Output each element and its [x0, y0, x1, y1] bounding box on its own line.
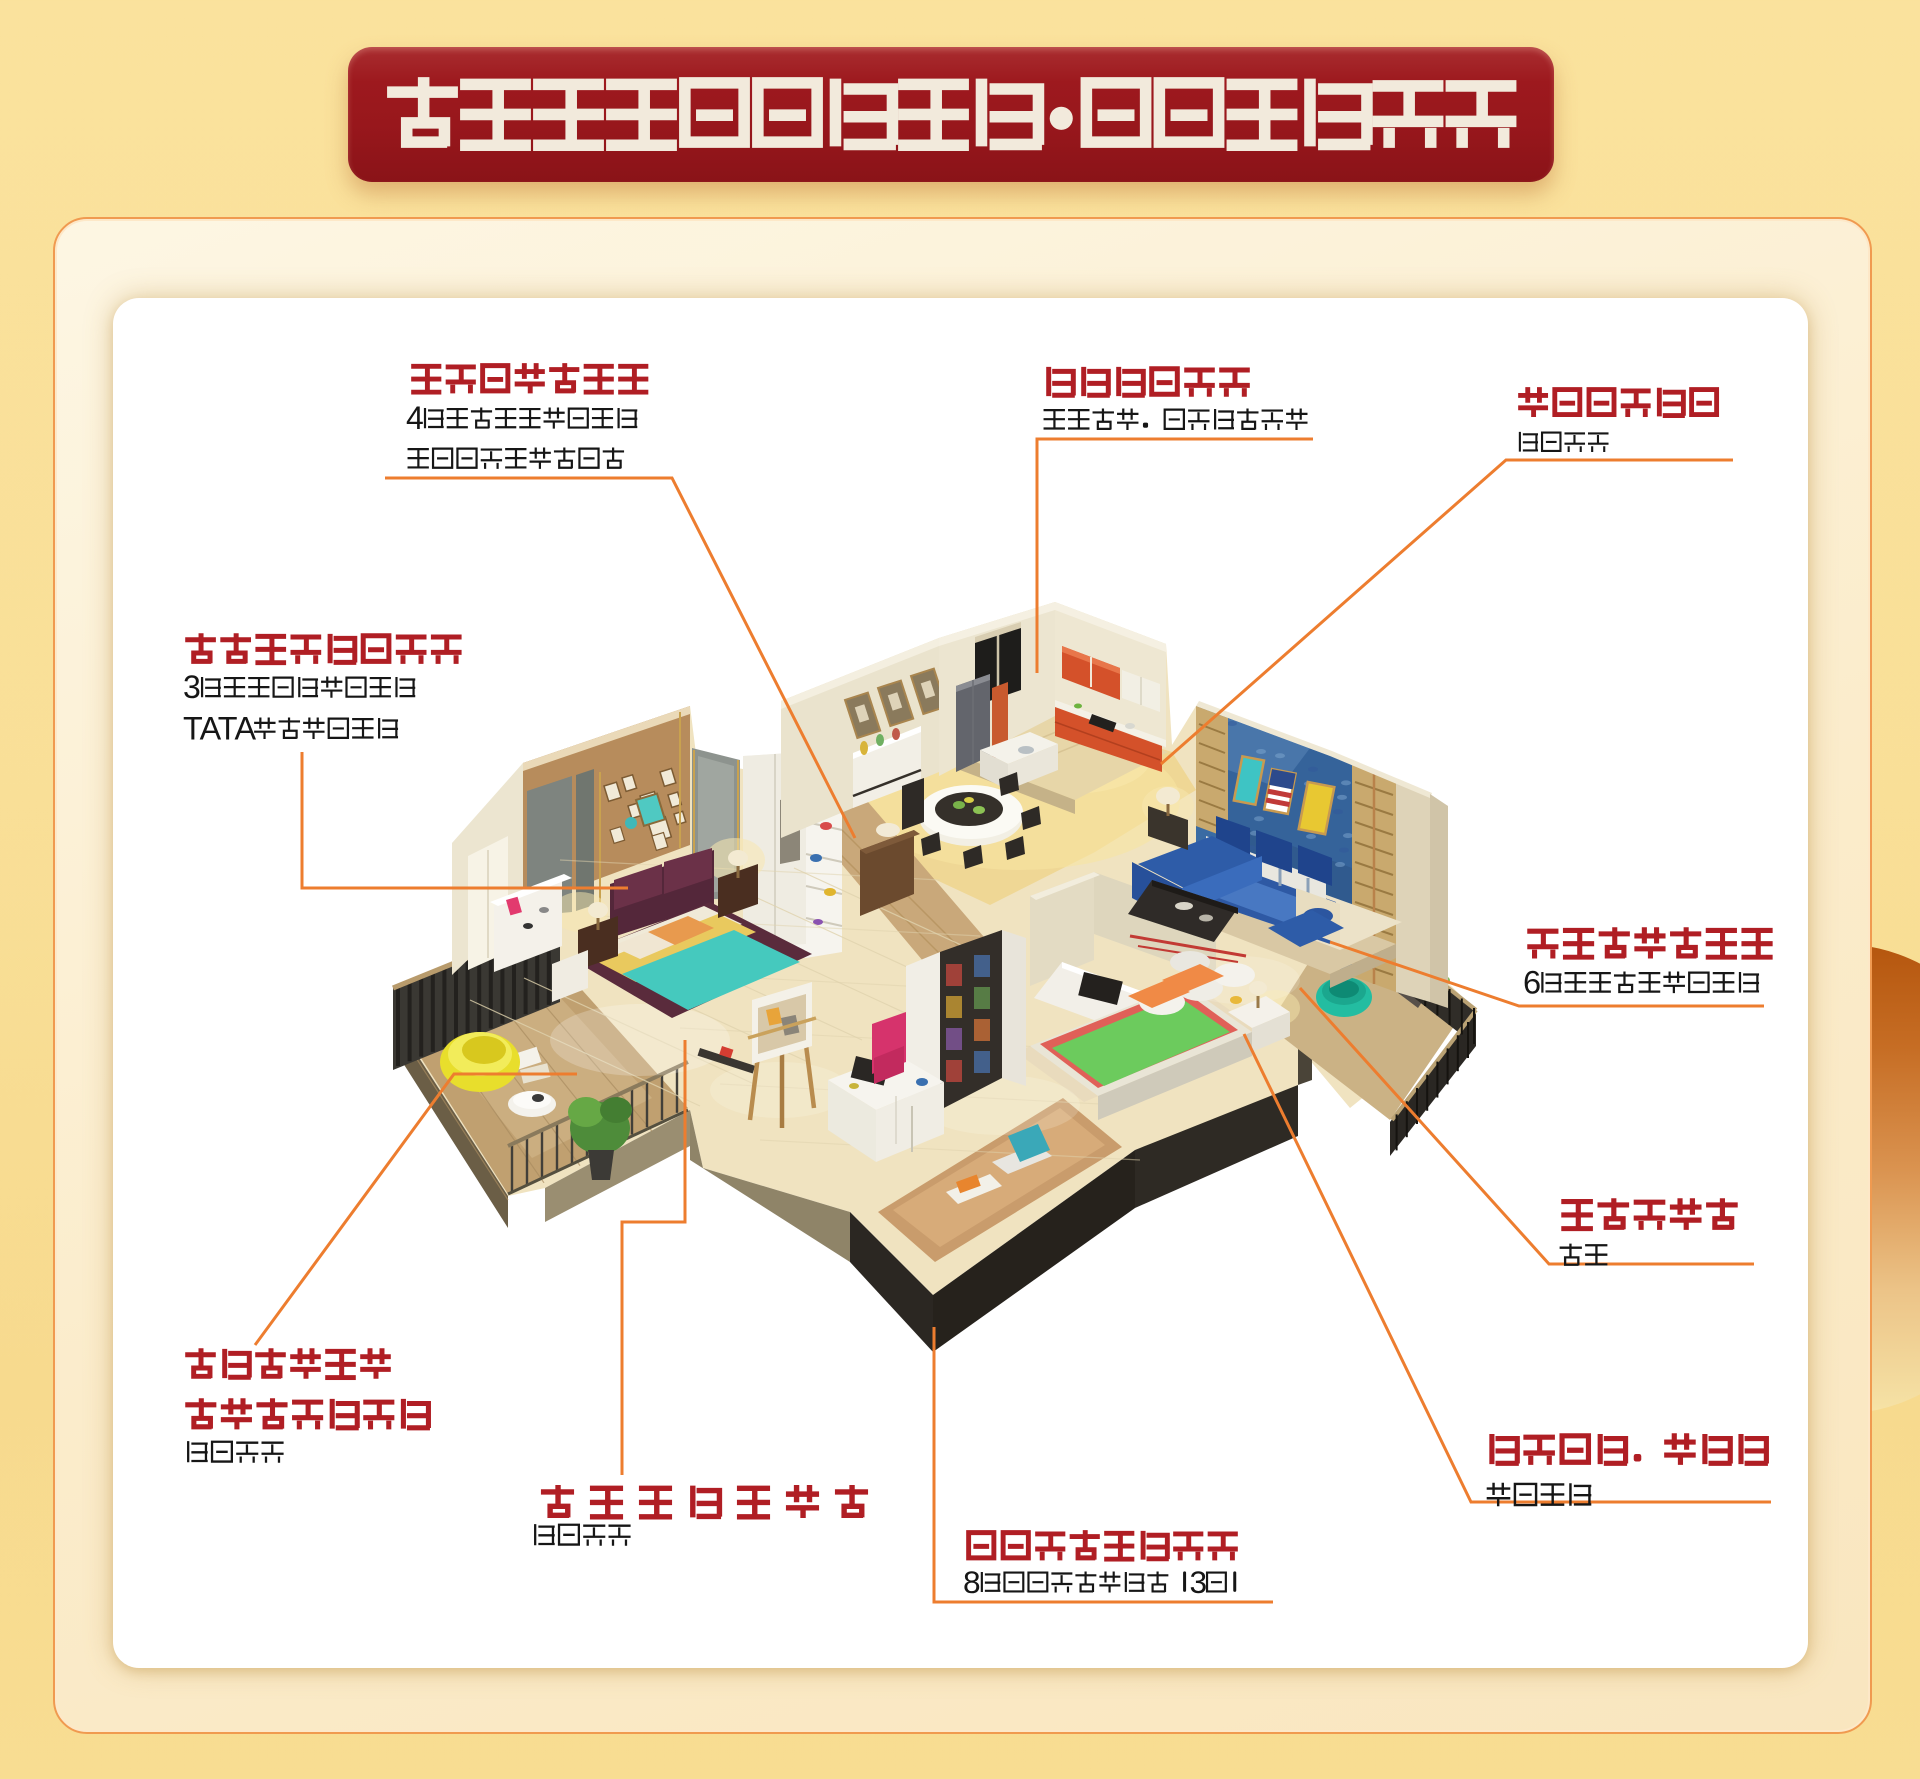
svg-text:8: 8 — [963, 1564, 981, 1600]
svg-text:3: 3 — [183, 669, 201, 705]
svg-text:4: 4 — [406, 400, 424, 436]
svg-text:A: A — [234, 710, 256, 746]
svg-text:6: 6 — [1523, 963, 1541, 1000]
svg-text:3: 3 — [1190, 1564, 1208, 1600]
